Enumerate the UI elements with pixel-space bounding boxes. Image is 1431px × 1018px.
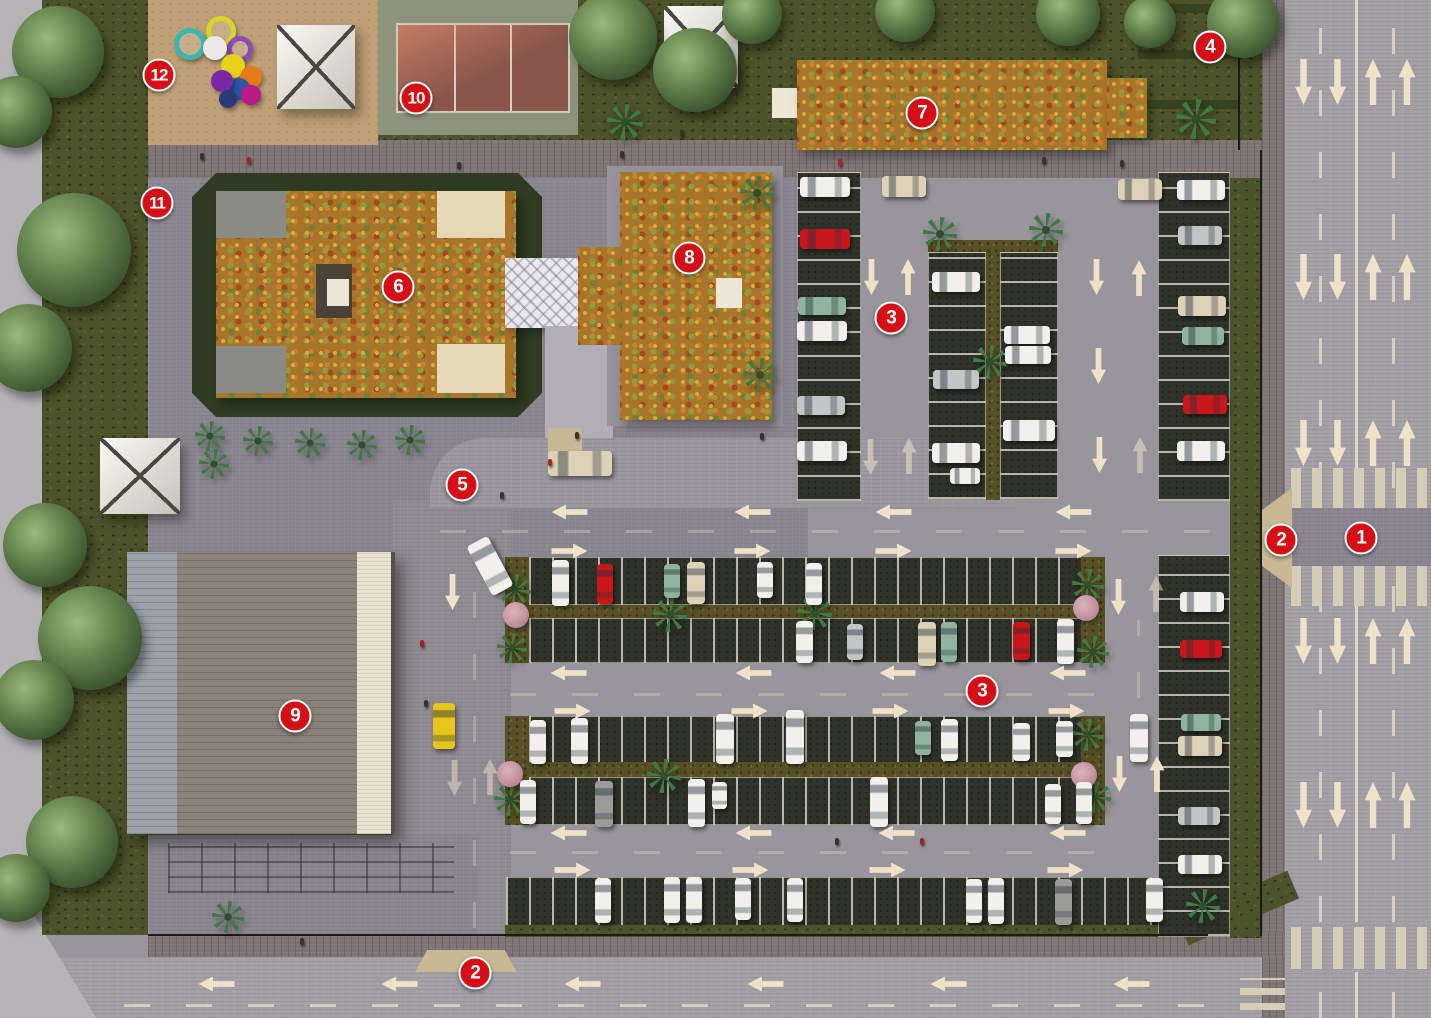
- numbered-marker-4[interactable]: 4: [1194, 31, 1227, 64]
- numbered-marker-3[interactable]: 3: [966, 675, 999, 708]
- numbered-marker-12[interactable]: 12: [143, 59, 176, 92]
- numbered-marker-5[interactable]: 5: [446, 469, 479, 502]
- numbered-marker-6[interactable]: 6: [382, 271, 415, 304]
- numbered-marker-7[interactable]: 7: [906, 97, 939, 130]
- numbered-marker-1[interactable]: 1: [1345, 522, 1378, 555]
- numbered-marker-8[interactable]: 8: [673, 242, 706, 275]
- numbered-marker-9[interactable]: 9: [279, 700, 312, 733]
- markers-layer: 12233456789101112: [0, 0, 1431, 1018]
- numbered-marker-2[interactable]: 2: [1265, 524, 1298, 557]
- numbered-marker-2[interactable]: 2: [459, 957, 492, 990]
- numbered-marker-11[interactable]: 11: [141, 187, 174, 220]
- masterplan-scene: 12233456789101112: [0, 0, 1431, 1018]
- numbered-marker-3[interactable]: 3: [875, 302, 908, 335]
- numbered-marker-10[interactable]: 10: [400, 82, 433, 115]
